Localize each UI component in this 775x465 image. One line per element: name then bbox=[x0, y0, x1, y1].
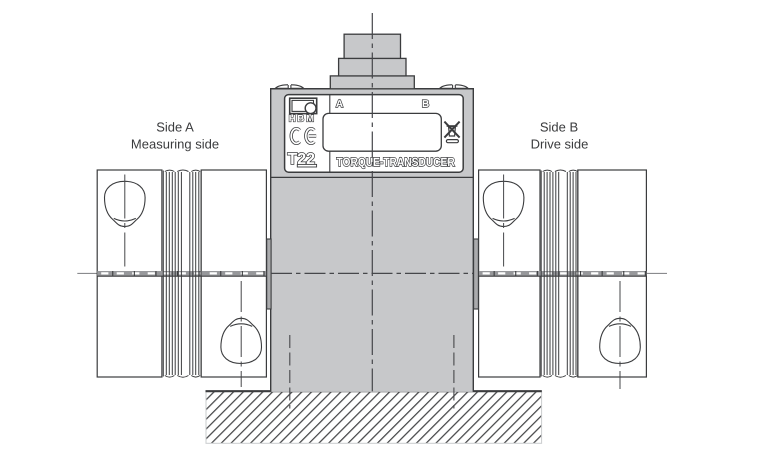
svg-text:Side B: Side B bbox=[540, 120, 578, 135]
svg-text:HBM: HBM bbox=[289, 114, 316, 125]
svg-text:Drive side: Drive side bbox=[531, 137, 589, 152]
svg-text:A: A bbox=[336, 99, 343, 110]
svg-text:Side A: Side A bbox=[156, 120, 194, 135]
svg-text:Measuring side: Measuring side bbox=[131, 137, 219, 152]
svg-text:TORQUE-TRANSDUCER: TORQUE-TRANSDUCER bbox=[336, 155, 455, 169]
svg-text:B: B bbox=[422, 99, 429, 110]
